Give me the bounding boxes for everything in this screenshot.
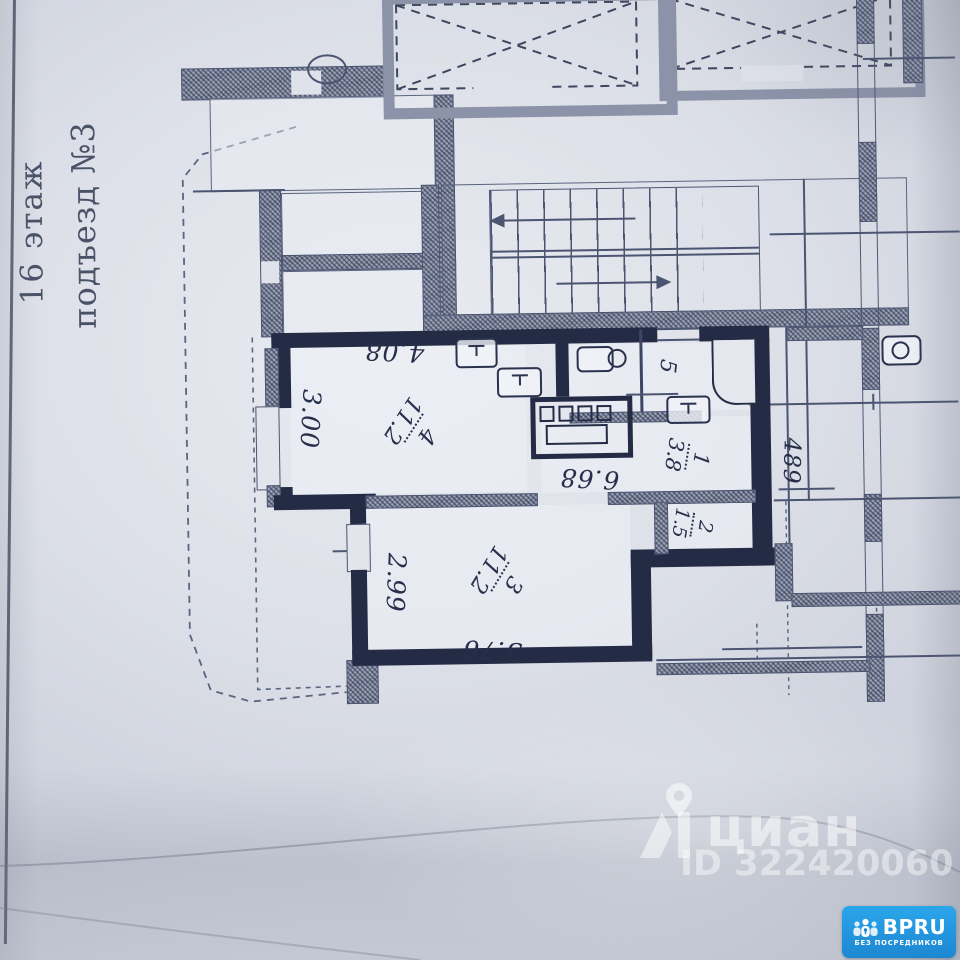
- floorplan-photo: 16 этаж подъезд №3: [0, 0, 960, 960]
- paper-edge-curve: [0, 908, 420, 960]
- bpru-brand-text: BPRU: [883, 917, 947, 937]
- watermark-listing-id: ID 322420060: [680, 844, 953, 884]
- bpru-people-icon: [852, 918, 879, 937]
- bpru-badge-row: BPRU: [852, 917, 947, 937]
- bpru-tagline-text: БЕЗ ПОСРЕДНИКОВ: [854, 939, 943, 947]
- bpru-badge[interactable]: BPRU БЕЗ ПОСРЕДНИКОВ: [842, 906, 956, 958]
